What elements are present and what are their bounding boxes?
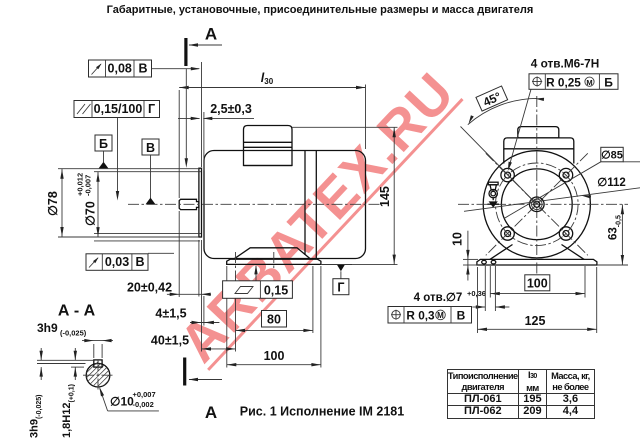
svg-text:Г: Г bbox=[337, 281, 344, 295]
svg-text:4 отв.М6-7Н: 4 отв.М6-7Н bbox=[531, 57, 599, 71]
svg-text:+0,36: +0,36 bbox=[467, 289, 486, 298]
svg-text:100: 100 bbox=[264, 349, 285, 363]
svg-text:10: 10 bbox=[451, 232, 465, 246]
svg-text:l30: l30 bbox=[261, 71, 274, 86]
svg-text:-0,002: -0,002 bbox=[133, 400, 154, 409]
svg-text:Г: Г bbox=[148, 102, 155, 116]
svg-text:Б: Б bbox=[604, 75, 613, 89]
svg-text:В: В bbox=[135, 255, 144, 269]
svg-text:1,8H12(+0,1): 1,8H12(+0,1) bbox=[61, 384, 76, 438]
svg-text:0,15/100: 0,15/100 bbox=[94, 102, 143, 116]
svg-text:100: 100 bbox=[527, 277, 548, 291]
svg-text:20±0,42: 20±0,42 bbox=[127, 281, 172, 295]
svg-text:М: М bbox=[437, 311, 444, 320]
svg-text:80: 80 bbox=[267, 313, 281, 327]
svg-text:∅112: ∅112 bbox=[597, 177, 626, 189]
svg-text:0,15: 0,15 bbox=[264, 284, 288, 298]
svg-text:63-0,5: 63-0,5 bbox=[608, 215, 623, 240]
svg-text:А - А: А - А bbox=[58, 303, 96, 320]
svg-text:М: М bbox=[586, 78, 592, 87]
svg-text:+0,007: +0,007 bbox=[133, 390, 156, 399]
svg-text:125: 125 bbox=[525, 314, 546, 328]
svg-text:В: В bbox=[138, 62, 147, 76]
svg-text:R 0,3: R 0,3 bbox=[406, 308, 435, 322]
svg-text:А: А bbox=[205, 403, 217, 422]
svg-text:3h9(-0,025): 3h9(-0,025) bbox=[29, 395, 44, 438]
svg-text:4±1,5: 4±1,5 bbox=[155, 307, 186, 321]
svg-text:R 0,25: R 0,25 bbox=[546, 75, 581, 89]
svg-text:∅70: ∅70 bbox=[84, 201, 98, 226]
svg-text:0,03: 0,03 bbox=[105, 255, 129, 269]
svg-text:Б: Б bbox=[99, 137, 108, 151]
svg-text:2,5±0,3: 2,5±0,3 bbox=[210, 102, 252, 116]
svg-text:∅78: ∅78 bbox=[46, 191, 60, 216]
svg-text:∅10: ∅10 bbox=[110, 395, 134, 409]
svg-text:В: В bbox=[146, 141, 155, 155]
svg-text:В: В bbox=[457, 308, 466, 322]
svg-text:-0,007: -0,007 bbox=[84, 175, 93, 196]
svg-text:А: А bbox=[205, 25, 217, 44]
svg-text:0,08: 0,08 bbox=[108, 62, 132, 76]
svg-text:40±1,5: 40±1,5 bbox=[151, 334, 189, 348]
svg-text:3h9: 3h9 bbox=[37, 321, 58, 335]
svg-text:4 отв.∅7: 4 отв.∅7 bbox=[414, 292, 463, 304]
svg-text:(-0,025): (-0,025) bbox=[60, 329, 87, 338]
svg-text:∅85: ∅85 bbox=[601, 150, 623, 162]
svg-text:Рис. 1 Исполнение IM 2181: Рис. 1 Исполнение IM 2181 bbox=[240, 405, 404, 419]
svg-text:145: 145 bbox=[378, 186, 392, 207]
